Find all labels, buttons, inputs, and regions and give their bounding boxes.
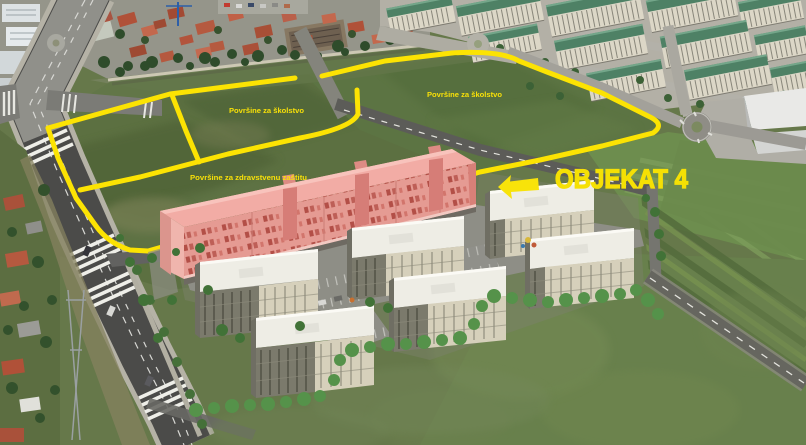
svg-text:Površine za zdravstvenu zaštit: Površine za zdravstvenu zaštitu	[190, 173, 308, 182]
svg-text:OBJEKAT 4: OBJEKAT 4	[555, 164, 688, 194]
svg-text:Površine za školstvo: Površine za školstvo	[427, 90, 502, 99]
svg-text:Površine za školstvo: Površine za školstvo	[229, 106, 304, 115]
